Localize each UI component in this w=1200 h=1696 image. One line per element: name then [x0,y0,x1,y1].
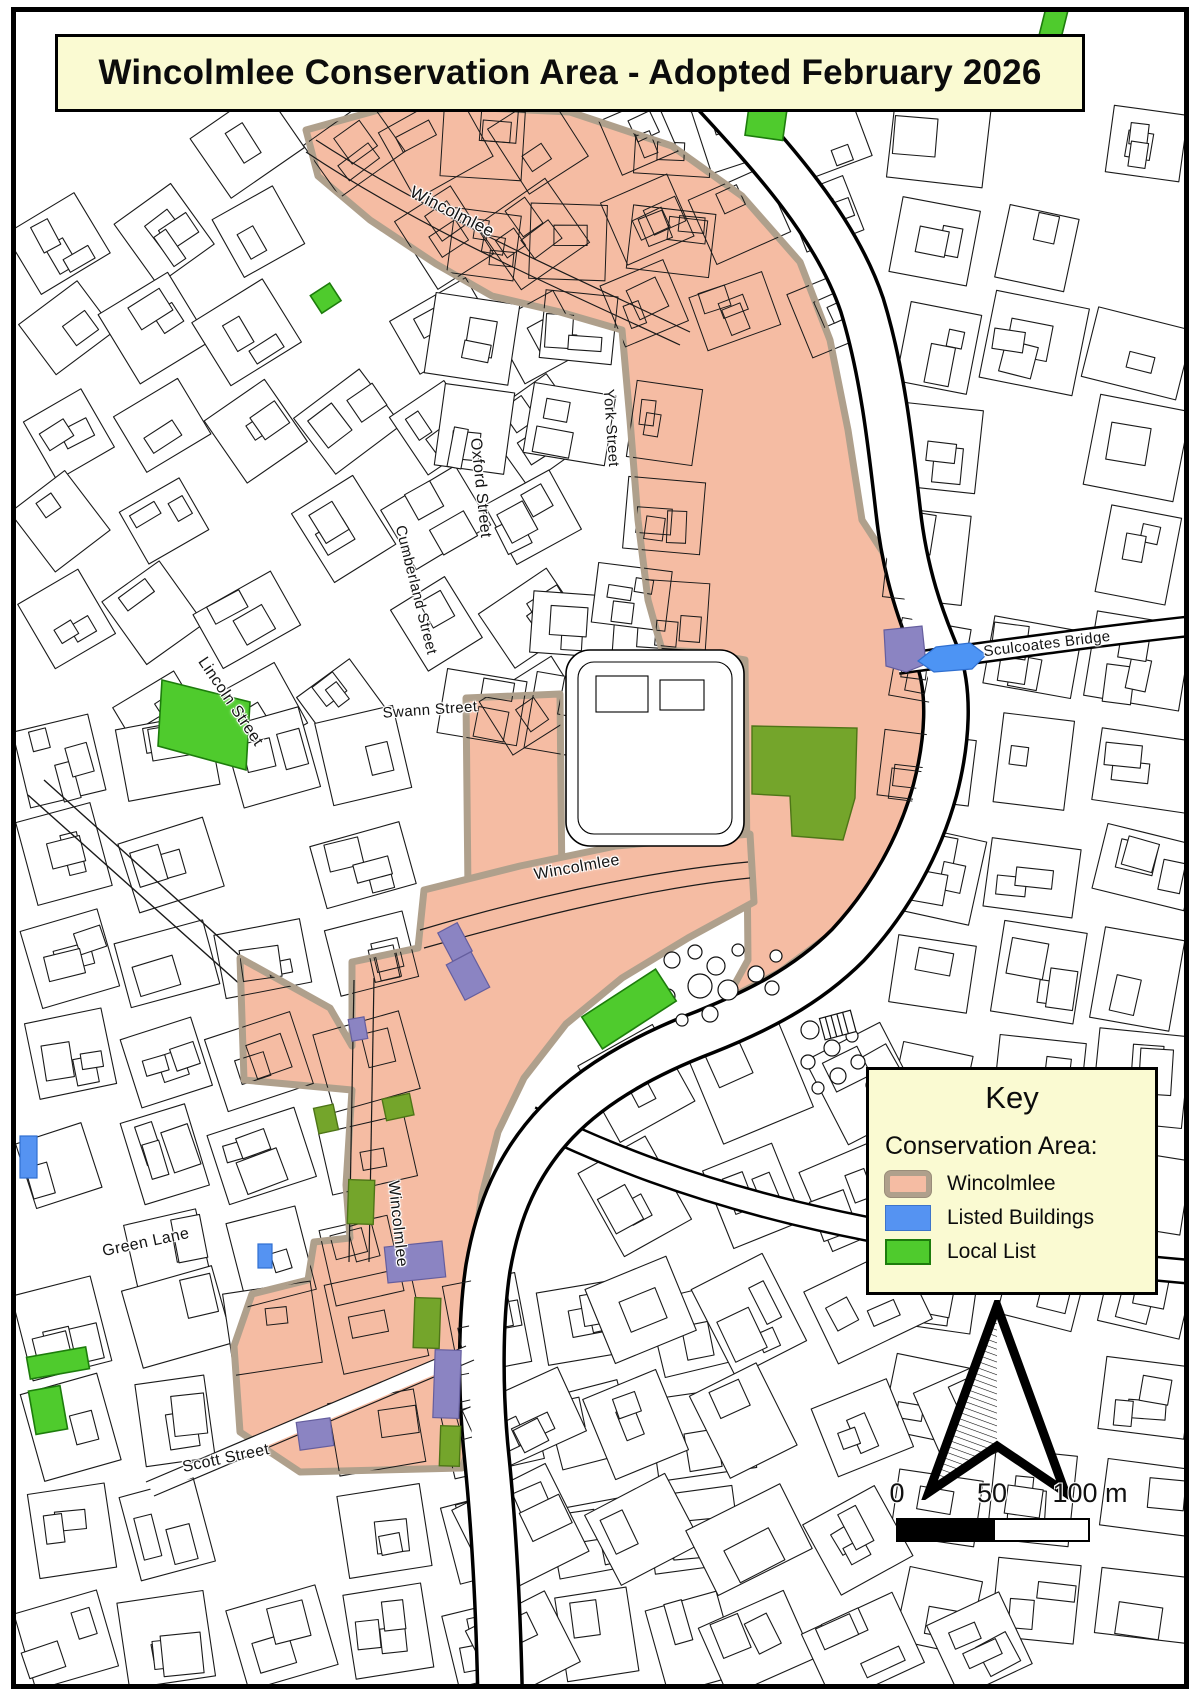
local-list-swatch-icon [885,1239,931,1265]
legend: Key Conservation Area: Wincolmlee Listed… [866,1067,1158,1295]
legend-item-wincolmlee: Wincolmlee [885,1171,1139,1197]
conservation-area-swatch-icon [885,1171,931,1197]
map-title: Wincolmlee Conservation Area - Adopted F… [98,53,1041,93]
scale-bar-segment-black [896,1518,995,1542]
north-arrow-icon [915,1300,1080,1500]
listed-buildings-swatch-icon [885,1205,931,1231]
map-title-banner: Wincolmlee Conservation Area - Adopted F… [55,34,1085,112]
legend-subtitle: Conservation Area: [885,1132,1139,1161]
legend-item-label: Wincolmlee [947,1172,1056,1196]
legend-item-listed-buildings: Listed Buildings [885,1205,1139,1231]
map-page: Wincolmlee Conservation Area - Adopted F… [0,0,1200,1696]
scale-label-50: 50 [977,1478,1007,1509]
legend-title: Key [885,1080,1139,1116]
scale-bar-segment-white [993,1518,1090,1542]
scale-label-100: 100 m [1052,1478,1127,1509]
legend-item-label: Local List [947,1240,1036,1264]
scale-label-0: 0 [889,1478,904,1509]
legend-item-local-list: Local List [885,1239,1139,1265]
legend-item-label: Listed Buildings [947,1206,1094,1230]
factory-block [566,650,744,846]
